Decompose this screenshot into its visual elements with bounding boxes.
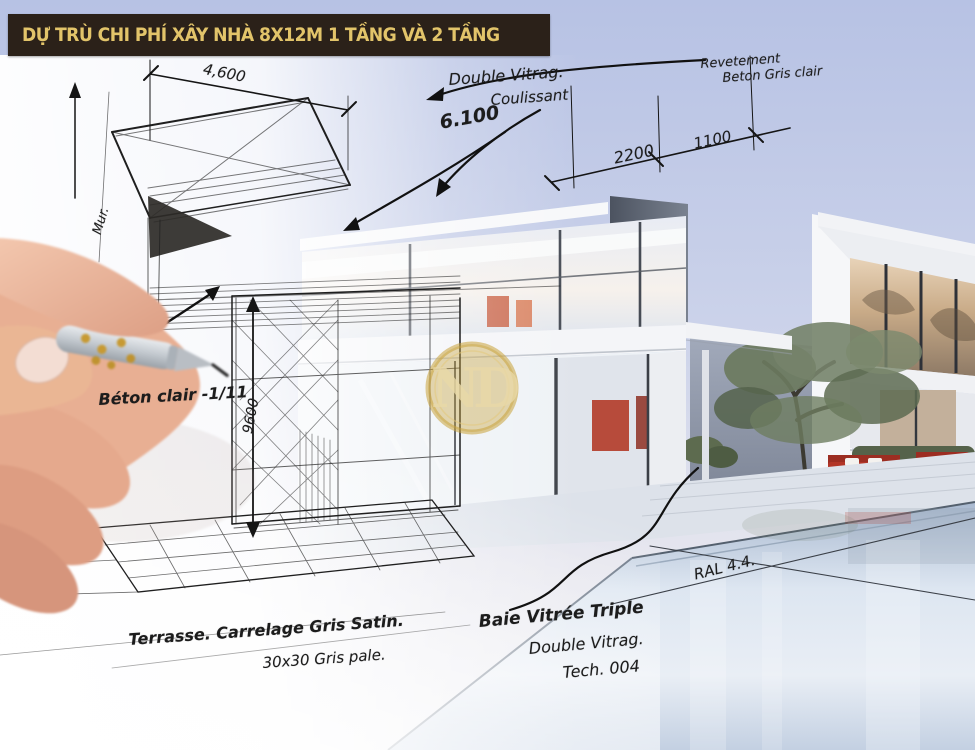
page-title: DỰ TRÙ CHI PHÍ XÂY NHÀ 8X12M 1 TẦNG VÀ 2… — [22, 25, 500, 46]
logo-watermark: ND — [428, 344, 518, 432]
title-banner: DỰ TRÙ CHI PHÍ XÂY NHÀ 8X12M 1 TẦNG VÀ 2… — [8, 14, 550, 56]
promo-image: ND 4,600 Mur. Double Vitrag. Coulissant … — [0, 0, 975, 750]
logo-monogram: ND — [431, 356, 518, 420]
